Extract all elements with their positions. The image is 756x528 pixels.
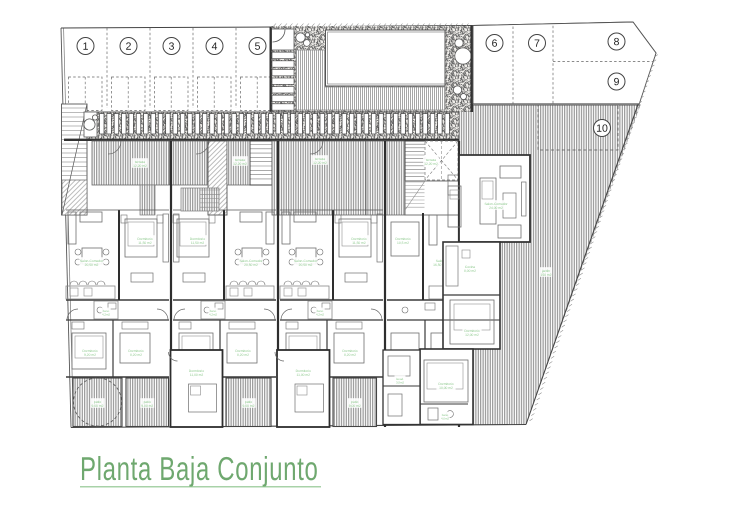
svg-text:150 m2: 150 m2 (540, 273, 551, 277)
svg-text:4,2m2: 4,2m2 (209, 312, 217, 316)
svg-text:9,20 m2: 9,20 m2 (84, 353, 96, 357)
svg-text:8,20 m2: 8,20 m2 (237, 353, 249, 357)
svg-text:12,00 m2: 12,00 m2 (465, 333, 479, 337)
svg-text:20,50 m2: 20,50 m2 (244, 263, 258, 267)
svg-text:12,20 m2: 12,20 m2 (133, 164, 147, 168)
svg-text:8,20 m2: 8,20 m2 (130, 353, 142, 357)
svg-text:9,00 m2: 9,00 m2 (349, 404, 361, 408)
svg-text:11,50 m2: 11,50 m2 (352, 241, 366, 245)
svg-text:12,20 m2: 12,20 m2 (313, 161, 327, 165)
svg-text:9,00 m2: 9,00 m2 (243, 404, 255, 408)
svg-text:11,50 m2: 11,50 m2 (191, 241, 205, 245)
svg-text:20,50 m2: 20,50 m2 (85, 263, 99, 267)
svg-text:11,00 m2: 11,00 m2 (296, 373, 310, 377)
svg-text:11,00 m2: 11,00 m2 (190, 373, 204, 377)
svg-text:8,20 m2: 8,20 m2 (344, 353, 356, 357)
svg-text:12,20 m2: 12,20 m2 (233, 162, 247, 166)
svg-text:12,20 m2: 12,20 m2 (424, 162, 438, 166)
svg-text:8,00 m2: 8,00 m2 (464, 269, 476, 273)
svg-text:9,00 m2: 9,00 m2 (141, 404, 153, 408)
svg-text:9,00 m2: 9,00 m2 (92, 404, 104, 408)
svg-text:10,00 m2: 10,00 m2 (439, 386, 453, 390)
svg-text:11,50 m2: 11,50 m2 (138, 241, 152, 245)
svg-text:24,00 m2: 24,00 m2 (489, 206, 503, 210)
svg-text:20,50 m2: 20,50 m2 (299, 263, 313, 267)
svg-text:3,5m2: 3,5m2 (396, 380, 404, 384)
svg-text:10,5 m2: 10,5 m2 (397, 241, 409, 245)
svg-text:4,0m2: 4,0m2 (441, 416, 449, 420)
svg-text:4,2m2: 4,2m2 (316, 312, 324, 316)
svg-text:4,2m2: 4,2m2 (102, 312, 110, 316)
